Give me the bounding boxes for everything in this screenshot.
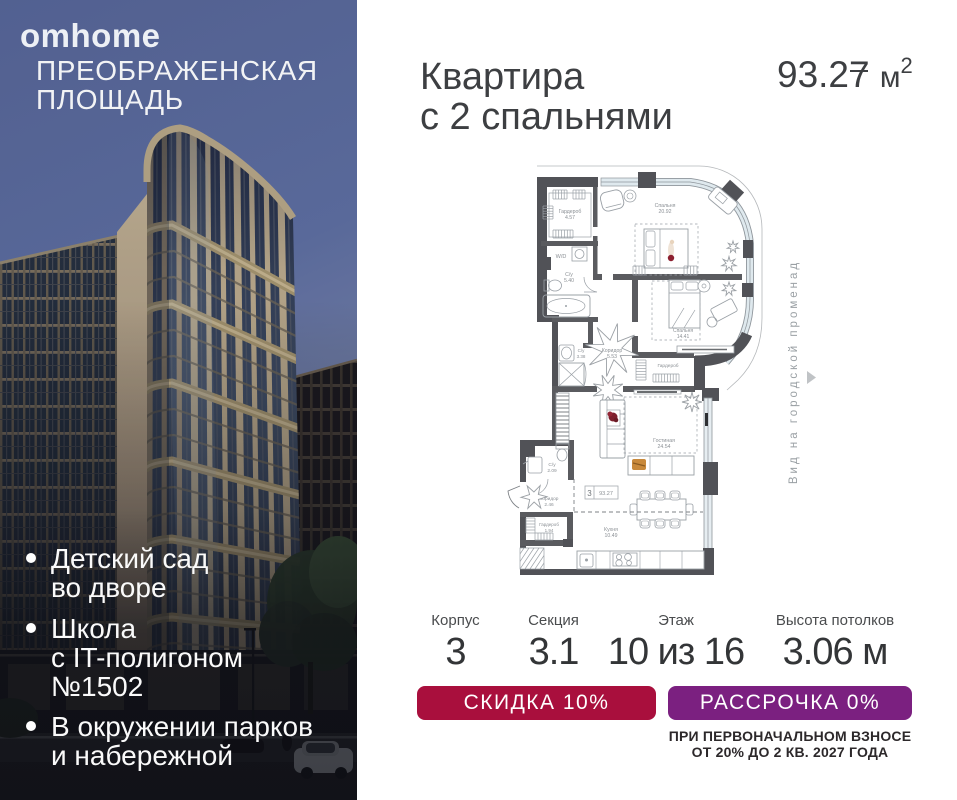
svg-text:5.53: 5.53 bbox=[607, 354, 617, 360]
svg-text:С/у: С/у bbox=[548, 462, 556, 468]
svg-text:2.46: 2.46 bbox=[544, 502, 554, 508]
svg-text:20.92: 20.92 bbox=[659, 209, 672, 215]
svg-text:10.49: 10.49 bbox=[605, 533, 618, 539]
svg-text:14.41: 14.41 bbox=[677, 334, 690, 340]
svg-text:С/у: С/у bbox=[578, 348, 586, 353]
svg-text:Гардероб: Гардероб bbox=[539, 522, 559, 527]
svg-text:3.38: 3.38 bbox=[577, 354, 586, 359]
svg-text:4.57: 4.57 bbox=[565, 215, 575, 221]
svg-text:W/D: W/D bbox=[556, 254, 567, 260]
svg-text:Вид на городской променад: Вид на городской променад bbox=[788, 260, 800, 484]
svg-text:24.54: 24.54 bbox=[658, 444, 671, 450]
svg-text:5.40: 5.40 bbox=[564, 278, 574, 284]
svg-text:93.27: 93.27 bbox=[599, 491, 613, 497]
svg-text:3: 3 bbox=[587, 489, 592, 498]
svg-text:2.09: 2.09 bbox=[547, 468, 557, 474]
svg-text:Гардероб: Гардероб bbox=[657, 363, 678, 369]
svg-text:1.94: 1.94 bbox=[545, 528, 554, 533]
